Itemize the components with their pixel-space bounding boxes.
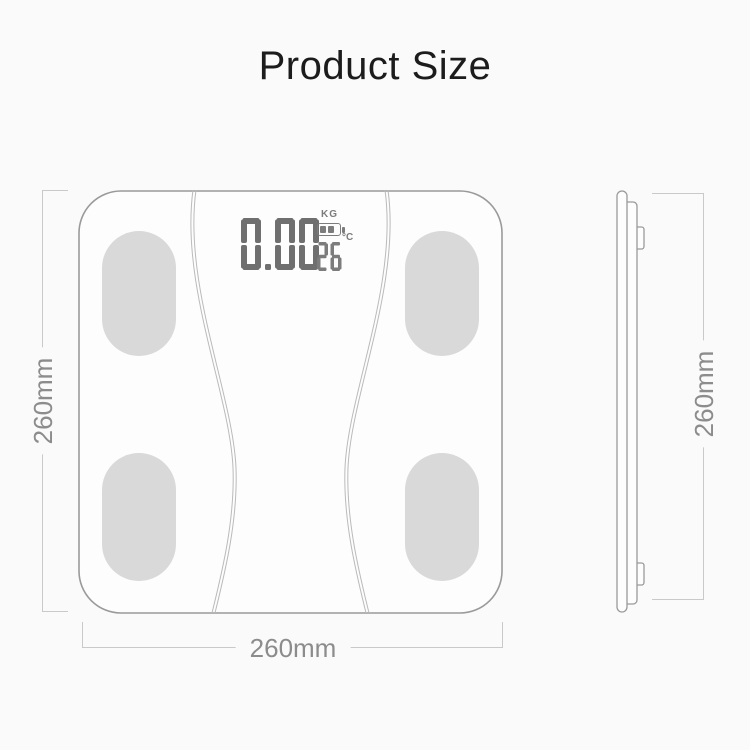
- battery-bar: [320, 226, 326, 233]
- battery-icon: [317, 223, 341, 236]
- celsius-unit-label: °C: [342, 232, 353, 243]
- front-width-dim-tick-right: [502, 622, 503, 648]
- page-title: Product Size: [0, 46, 750, 86]
- front-height-dim-label: 260mm: [26, 348, 60, 455]
- temperature-readout: [317, 242, 342, 271]
- front-height-dim-tick-top: [42, 190, 68, 191]
- lcd-display: KG °C: [78, 190, 503, 310]
- side-height-dim-tick-top: [652, 193, 704, 194]
- scale-front-view: KG °C: [78, 190, 503, 614]
- side-height-dim-tick-bottom: [652, 599, 704, 600]
- weight-readout: [241, 218, 319, 270]
- side-height-dim-label: 260mm: [687, 341, 721, 448]
- front-height-dim-tick-bottom: [42, 611, 68, 612]
- electrode-pad-bottom-left: [102, 453, 176, 581]
- electrode-pad-bottom-right: [405, 453, 479, 581]
- side-glass-layer: [617, 191, 627, 612]
- product-size-diagram: Product Size KG: [0, 0, 750, 750]
- front-width-dim-label: 260mm: [236, 633, 351, 663]
- front-width-dim-tick-left: [82, 622, 83, 648]
- kg-unit-label: KG: [321, 209, 338, 220]
- scale-side-view: [615, 190, 651, 614]
- battery-bar: [328, 226, 334, 233]
